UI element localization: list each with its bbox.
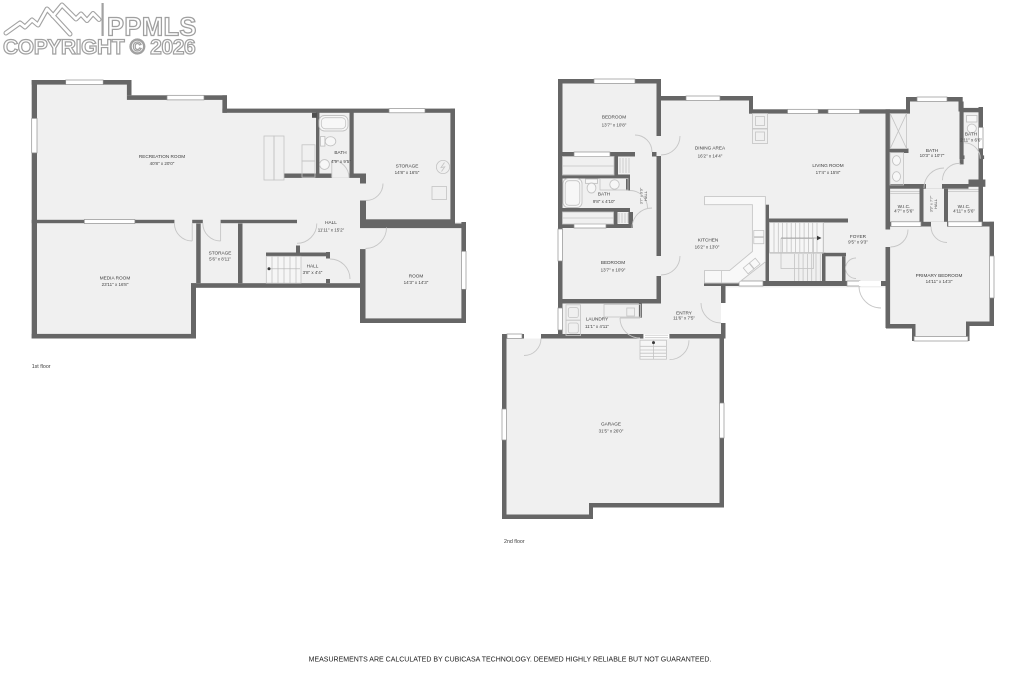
svg-text:HALL: HALL (307, 264, 319, 269)
svg-text:23'11" x 16'8": 23'11" x 16'8" (102, 282, 129, 287)
svg-text:3'7" x 9'9": 3'7" x 9'9" (640, 187, 644, 204)
svg-text:MEDIA ROOM: MEDIA ROOM (100, 276, 131, 281)
svg-text:BATH: BATH (598, 192, 610, 197)
svg-text:KITCHEN: KITCHEN (698, 238, 719, 243)
svg-text:MEASUREMENTS ARE CALCULATED BY: MEASUREMENTS ARE CALCULATED BY CUBICASA … (309, 657, 712, 664)
svg-text:BEDROOM: BEDROOM (602, 115, 626, 120)
svg-text:LAUNDRY: LAUNDRY (586, 316, 609, 321)
svg-text:COPYRIGHT © 2026: COPYRIGHT © 2026 (3, 36, 195, 59)
svg-text:STORAGE: STORAGE (396, 164, 419, 169)
svg-text:LIVING ROOM: LIVING ROOM (812, 163, 843, 168)
svg-text:4'11" x 5'6": 4'11" x 5'6" (953, 209, 975, 214)
svg-text:BATH: BATH (965, 132, 977, 137)
svg-text:BATH: BATH (334, 150, 346, 155)
svg-text:9'8" x 4'10": 9'8" x 4'10" (593, 199, 616, 204)
svg-text:16'2" x 14'4": 16'2" x 14'4" (698, 154, 723, 159)
svg-text:40'8" x 20'0": 40'8" x 20'0" (150, 161, 175, 166)
svg-text:RECREATION ROOM: RECREATION ROOM (139, 154, 185, 159)
svg-text:HALL: HALL (933, 198, 938, 209)
svg-text:14'11" x 14'3": 14'11" x 14'3" (926, 279, 953, 284)
svg-text:4'9" x 9'5": 4'9" x 9'5" (331, 159, 351, 164)
svg-text:2'11" x 6'6": 2'11" x 6'6" (960, 137, 982, 142)
svg-text:11'11" x 15'2": 11'11" x 15'2" (318, 228, 345, 233)
svg-text:PRIMARY BEDROOM: PRIMARY BEDROOM (916, 273, 963, 278)
svg-text:FOYER: FOYER (850, 234, 867, 239)
svg-text:DINING AREA: DINING AREA (695, 146, 726, 151)
svg-text:HALL: HALL (643, 190, 648, 201)
svg-text:11'6" x 7'5": 11'6" x 7'5" (673, 316, 695, 321)
svg-text:17'4" x 15'8": 17'4" x 15'8" (816, 170, 841, 175)
svg-text:14'8" x 16'5": 14'8" x 16'5" (395, 170, 420, 175)
svg-text:GARAGE: GARAGE (601, 422, 621, 427)
svg-text:3'9" x 7'7": 3'9" x 7'7" (930, 195, 934, 212)
svg-text:BEDROOM: BEDROOM (601, 260, 625, 265)
svg-text:13'7" x 10'9": 13'7" x 10'9" (601, 268, 626, 273)
svg-text:14'3" x 14'3": 14'3" x 14'3" (404, 280, 429, 285)
svg-text:13'7" x 10'8": 13'7" x 10'8" (602, 123, 627, 128)
svg-text:9'5" x 9'3": 9'5" x 9'3" (848, 240, 868, 245)
svg-text:16'2" x 13'0": 16'2" x 13'0" (695, 245, 720, 250)
svg-text:1st floor: 1st floor (32, 364, 51, 370)
svg-text:31'5" x 26'0": 31'5" x 26'0" (599, 429, 624, 434)
svg-text:4'7" x 5'6": 4'7" x 5'6" (894, 209, 914, 214)
svg-text:5'6" x 8'11": 5'6" x 8'11" (209, 257, 231, 262)
svg-text:3'8" x 4'4": 3'8" x 4'4" (303, 270, 323, 275)
svg-text:11'1" x 4'11": 11'1" x 4'11" (585, 324, 609, 329)
svg-text:10'3" x 10'7": 10'3" x 10'7" (920, 153, 945, 158)
svg-text:STORAGE: STORAGE (209, 251, 232, 256)
svg-text:2nd floor: 2nd floor (504, 539, 525, 545)
svg-text:ROOM: ROOM (409, 274, 424, 279)
svg-text:HALL: HALL (325, 220, 337, 225)
